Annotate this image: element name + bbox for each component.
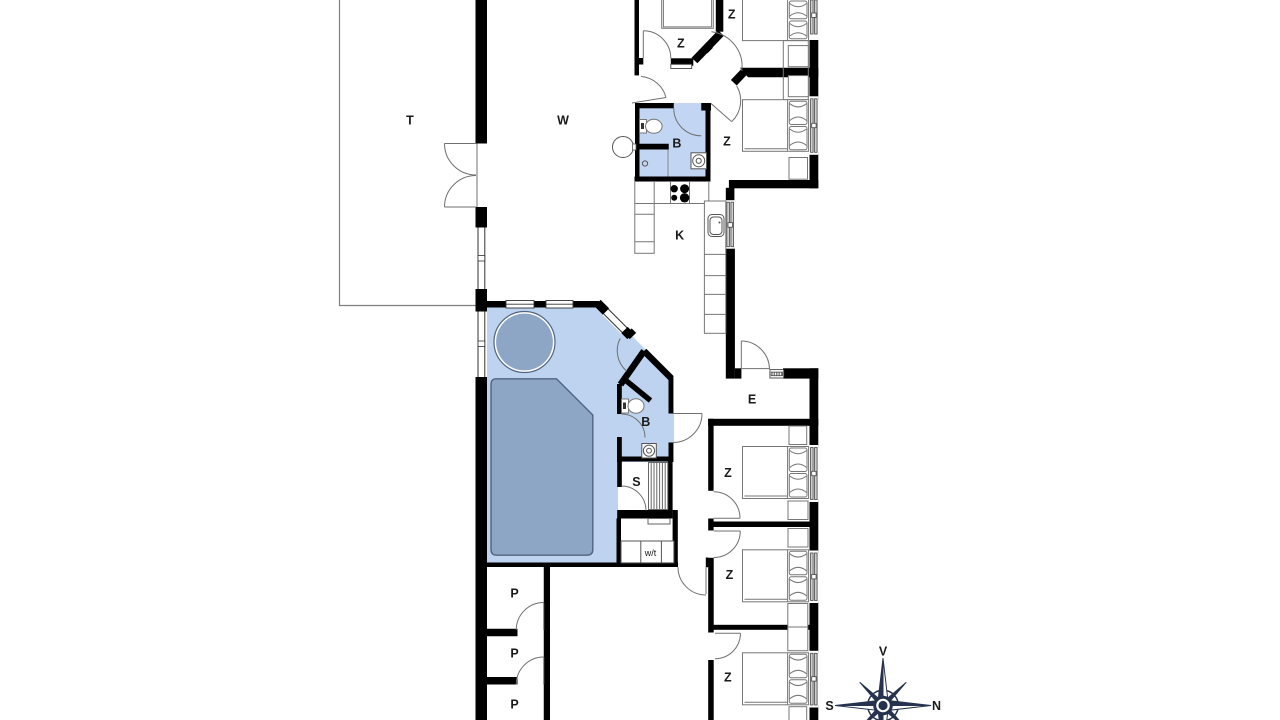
svg-text:E: E — [748, 393, 756, 407]
svg-text:Z: Z — [728, 8, 736, 22]
svg-text:Z: Z — [724, 670, 732, 684]
svg-text:K: K — [675, 228, 684, 242]
svg-text:S: S — [632, 475, 640, 489]
svg-text:Z: Z — [723, 135, 731, 149]
svg-text:W: W — [557, 114, 569, 128]
svg-text:Z: Z — [677, 37, 685, 51]
svg-text:w/t: w/t — [644, 548, 657, 558]
svg-text:B: B — [672, 137, 681, 151]
svg-text:Z: Z — [726, 568, 734, 582]
svg-text:Z: Z — [724, 466, 732, 480]
svg-text:N: N — [932, 699, 941, 713]
svg-text:P: P — [510, 647, 518, 661]
svg-text:B: B — [641, 415, 650, 429]
svg-text:P: P — [510, 587, 518, 601]
svg-text:P: P — [510, 697, 518, 711]
svg-text:V: V — [879, 645, 888, 659]
svg-text:S: S — [825, 699, 833, 713]
svg-text:T: T — [406, 114, 414, 128]
